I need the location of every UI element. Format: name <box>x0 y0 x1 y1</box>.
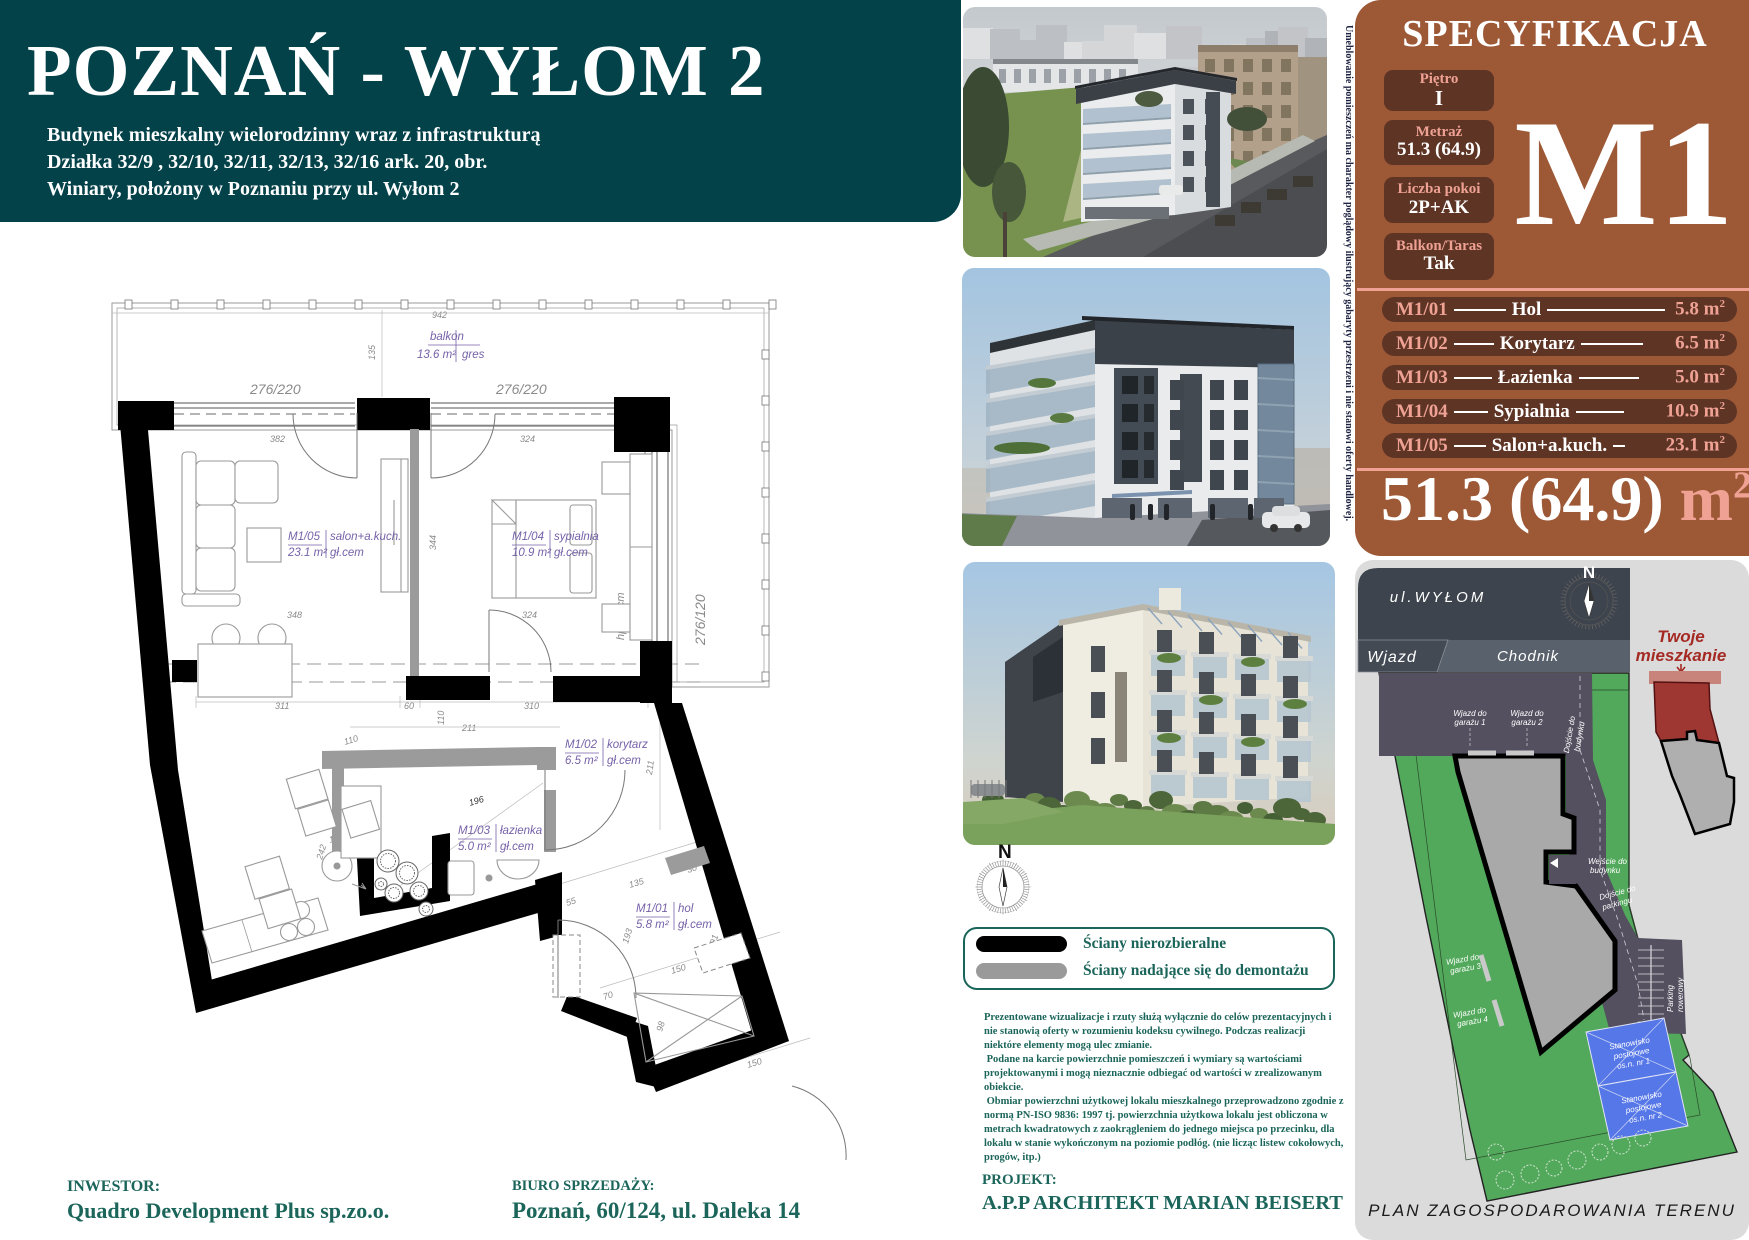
svg-text:N: N <box>998 842 1012 863</box>
svg-text:344: 344 <box>428 535 438 550</box>
svg-text:135: 135 <box>367 344 377 360</box>
svg-text:211: 211 <box>461 723 476 733</box>
svg-text:70: 70 <box>602 989 615 1001</box>
svg-text:łazienka: łazienka <box>500 825 542 837</box>
svg-text:ul.WYŁOM: ul.WYŁOM <box>1390 589 1487 606</box>
svg-text:5.0 m²: 5.0 m² <box>458 841 492 853</box>
svg-text:98: 98 <box>654 1020 666 1033</box>
svg-text:196: 196 <box>468 794 485 808</box>
svg-text:150: 150 <box>746 1056 763 1070</box>
svg-text:135: 135 <box>628 876 646 890</box>
svg-text:garażu 1: garażu 1 <box>1454 718 1485 727</box>
svg-text:13.6 m²: 13.6 m² <box>417 349 457 361</box>
svg-text:110: 110 <box>436 711 446 725</box>
svg-text:salon+a.kuch.: salon+a.kuch. <box>330 531 401 543</box>
svg-text:324: 324 <box>522 610 537 620</box>
svg-text:150: 150 <box>670 962 687 976</box>
svg-text:mieszkanie: mieszkanie <box>1636 646 1727 665</box>
svg-text:M1/01: M1/01 <box>636 903 668 915</box>
svg-text:311: 311 <box>275 701 289 711</box>
svg-text:276/120: 276/120 <box>692 594 708 646</box>
svg-text:55: 55 <box>565 895 578 908</box>
svg-text:942: 942 <box>432 310 447 320</box>
svg-text:382: 382 <box>270 434 285 444</box>
svg-text:PLAN ZAGOSPODAROWANIA TERENU: PLAN ZAGOSPODAROWANIA TERENU <box>1368 1201 1736 1220</box>
svg-text:348: 348 <box>287 610 302 620</box>
svg-text:korytarz: korytarz <box>607 739 648 751</box>
svg-text:gres: gres <box>462 349 485 361</box>
svg-text:rowerowy: rowerowy <box>1676 977 1685 1012</box>
svg-text:N: N <box>1583 563 1595 582</box>
svg-text:Twoje: Twoje <box>1657 627 1705 646</box>
svg-text:M1/04: M1/04 <box>512 531 544 543</box>
svg-text:23.1 m²: 23.1 m² <box>287 547 328 559</box>
svg-text:M1/02: M1/02 <box>565 739 598 751</box>
svg-text:M1/05: M1/05 <box>288 531 321 543</box>
svg-text:60: 60 <box>404 701 414 711</box>
svg-text:hol: hol <box>678 903 694 915</box>
svg-text:310: 310 <box>524 701 539 711</box>
svg-text:Chodnik: Chodnik <box>1497 648 1560 665</box>
svg-text:gł.cem: gł.cem <box>607 755 641 767</box>
svg-text:5.8 m²: 5.8 m² <box>636 919 670 931</box>
svg-text:gł.cem: gł.cem <box>678 919 712 931</box>
svg-text:10.9 m²: 10.9 m² <box>512 547 552 559</box>
svg-text:211: 211 <box>644 760 656 777</box>
svg-text:budynku: budynku <box>1590 866 1621 875</box>
svg-text:193: 193 <box>620 927 634 944</box>
svg-text:garażu 2: garażu 2 <box>1511 718 1543 727</box>
svg-text:gł.cem: gł.cem <box>554 547 588 559</box>
svg-text:110: 110 <box>343 733 360 747</box>
svg-text:Wjazd do: Wjazd do <box>1510 709 1544 718</box>
svg-text:Wejście do: Wejście do <box>1588 857 1628 866</box>
svg-text:6.5 m²: 6.5 m² <box>565 755 599 767</box>
svg-text:Parking: Parking <box>1666 984 1675 1012</box>
svg-text:gł.cem: gł.cem <box>500 841 534 853</box>
svg-text:Wjazd do: Wjazd do <box>1453 709 1487 718</box>
svg-text:276/220: 276/220 <box>495 381 547 397</box>
svg-text:gł.cem: gł.cem <box>330 547 364 559</box>
svg-text:balkon: balkon <box>430 331 464 343</box>
svg-text:Wjazd: Wjazd <box>1367 649 1417 666</box>
svg-text:sypialnia: sypialnia <box>554 531 599 543</box>
svg-text:324: 324 <box>520 434 535 444</box>
svg-text:M1/03: M1/03 <box>458 825 491 837</box>
svg-text:276/220: 276/220 <box>249 381 301 397</box>
